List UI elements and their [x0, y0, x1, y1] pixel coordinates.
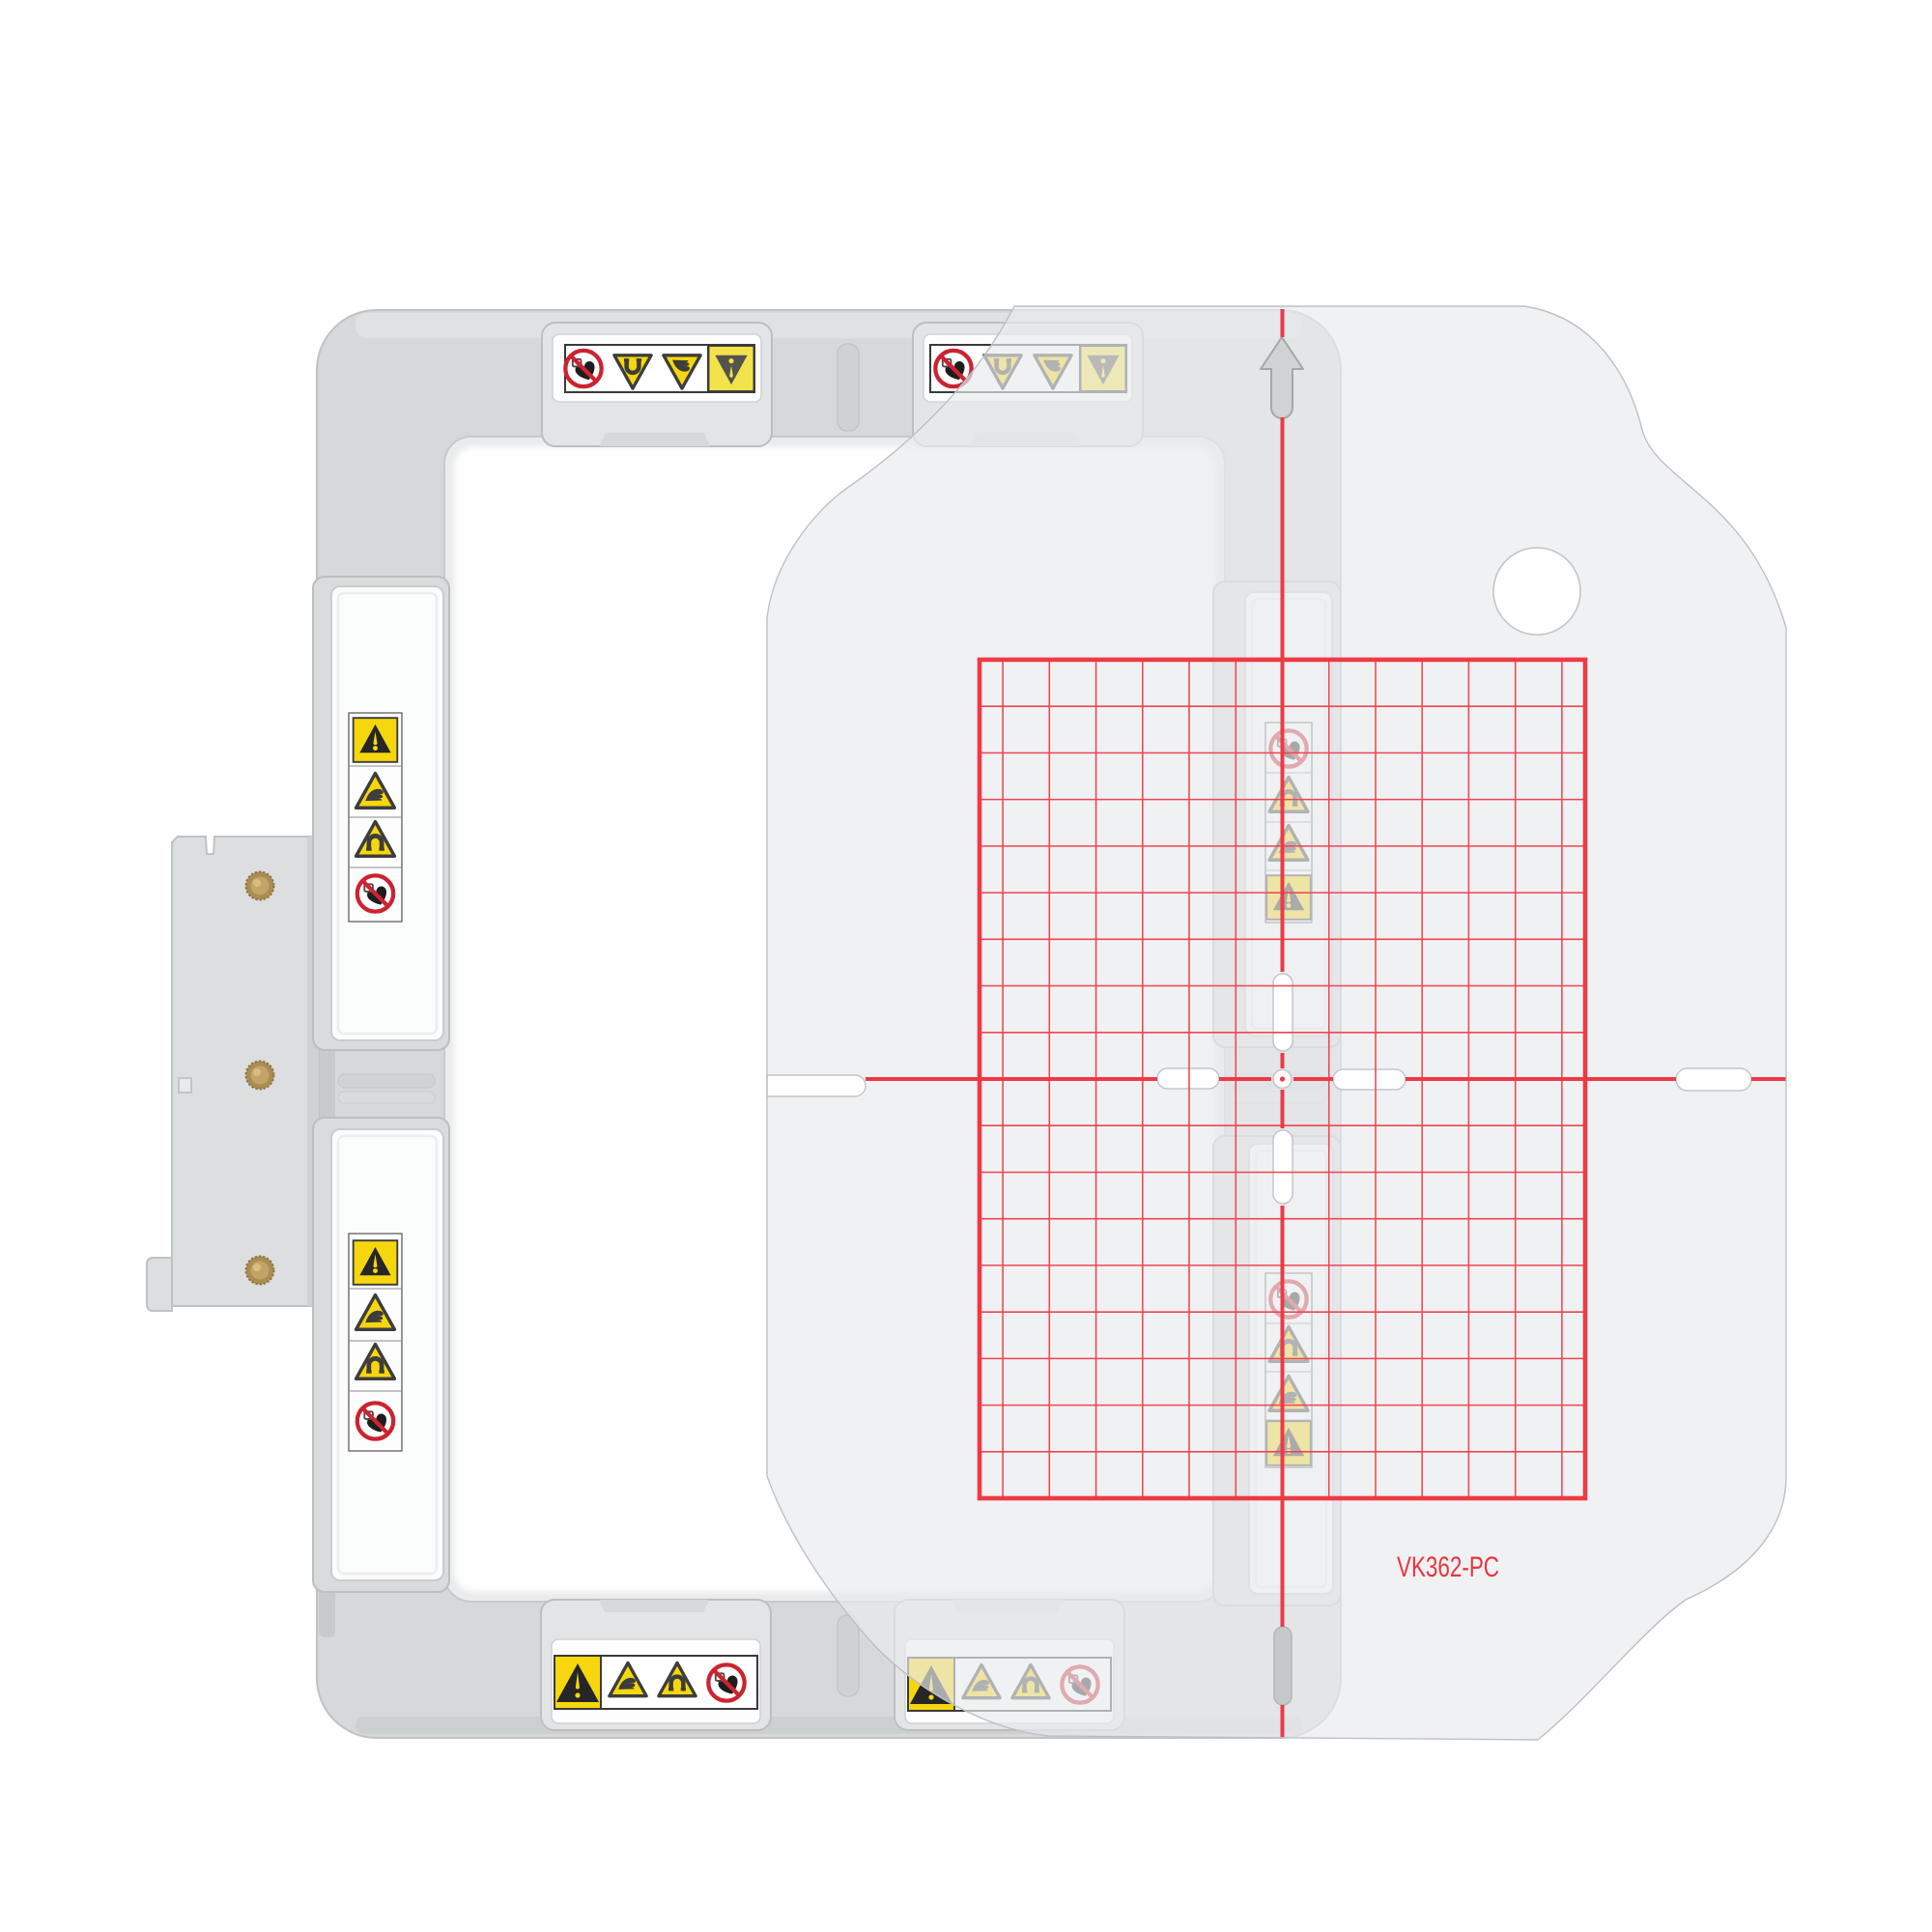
svg-text:VK362-PC: VK362-PC [1397, 1551, 1499, 1583]
